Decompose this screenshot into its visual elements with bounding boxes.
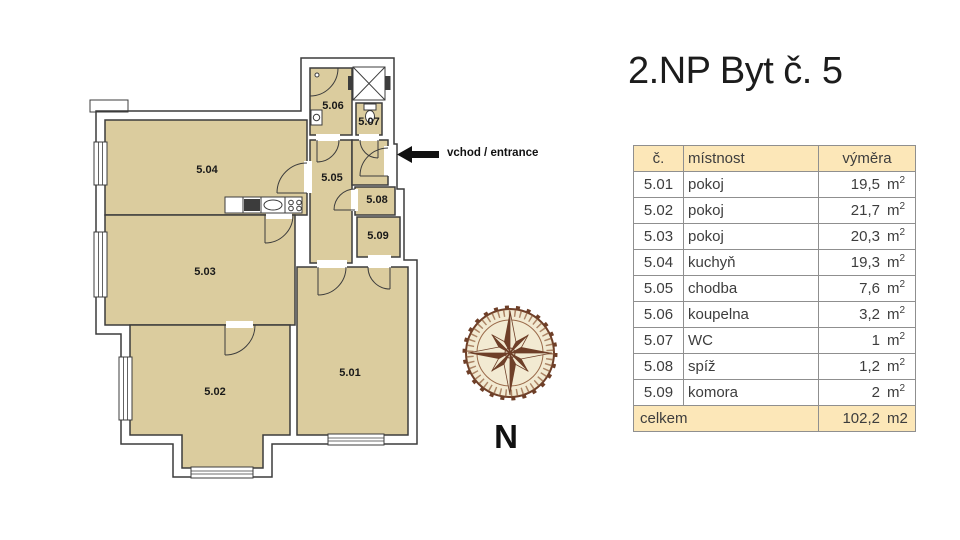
footer-area: 102,2m2 <box>819 406 916 432</box>
north-label: N <box>494 418 518 456</box>
table-row: 5.06koupelna3,2m2 <box>634 302 916 328</box>
area-table-body: 5.01pokoj19,5m25.02pokoj21,7m25.03pokoj2… <box>634 172 916 406</box>
cell-room: pokoj <box>684 224 819 250</box>
table-row: 5.04kuchyň19,3m2 <box>634 250 916 276</box>
cell-area: 2m2 <box>819 380 916 406</box>
cell-number: 5.05 <box>634 276 684 302</box>
cell-area: 1m2 <box>819 328 916 354</box>
compass-rose-icon <box>460 301 560 405</box>
cell-area: 3,2m2 <box>819 302 916 328</box>
cell-area: 21,7m2 <box>819 198 916 224</box>
cell-number: 5.07 <box>634 328 684 354</box>
cell-room: komora <box>684 380 819 406</box>
room-label-5-03: 5.03 <box>194 266 215 278</box>
room-label-5-08: 5.08 <box>366 194 387 206</box>
cell-area: 20,3m2 <box>819 224 916 250</box>
room-label-5-02: 5.02 <box>204 386 225 398</box>
table-row: 5.09komora2m2 <box>634 380 916 406</box>
page: 5.01 5.02 5.03 5.04 5.05 5.06 5.07 5.08 … <box>0 0 960 540</box>
table-footer-row: celkem 102,2m2 <box>634 406 916 432</box>
room-label-5-01: 5.01 <box>339 367 360 379</box>
cell-room: kuchyň <box>684 250 819 276</box>
floor-plan-drawing <box>60 50 460 490</box>
room-5-05-shape <box>310 140 352 263</box>
footer-label: celkem <box>634 406 819 432</box>
cell-area: 7,6m2 <box>819 276 916 302</box>
cell-number: 5.02 <box>634 198 684 224</box>
page-title: 2.NP Byt č. 5 <box>628 50 843 93</box>
entry-vestibule-shape <box>352 140 388 185</box>
table-row: 5.03pokoj20,3m2 <box>634 224 916 250</box>
cell-area: 19,3m2 <box>819 250 916 276</box>
cell-number: 5.04 <box>634 250 684 276</box>
kitchen-counter <box>225 197 302 213</box>
area-table: č. místnost výměra 5.01pokoj19,5m25.02po… <box>633 145 916 432</box>
room-label-5-06: 5.06 <box>322 100 343 112</box>
room-label-5-05: 5.05 <box>321 172 342 184</box>
cell-room: koupelna <box>684 302 819 328</box>
cell-room: WC <box>684 328 819 354</box>
room-label-5-09: 5.09 <box>367 230 388 242</box>
header-room: místnost <box>684 146 819 172</box>
cell-number: 5.08 <box>634 354 684 380</box>
cell-room: pokoj <box>684 198 819 224</box>
room-label-5-07: 5.07 <box>358 116 379 128</box>
entrance-label: vchod / entrance <box>447 147 538 159</box>
cell-area: 1,2m2 <box>819 354 916 380</box>
elevator-shaft <box>348 67 391 100</box>
cell-room: chodba <box>684 276 819 302</box>
cell-number: 5.01 <box>634 172 684 198</box>
room-label-5-04: 5.04 <box>196 164 217 176</box>
wall-bump <box>90 100 128 112</box>
header-area: výměra <box>819 146 916 172</box>
table-row: 5.01pokoj19,5m2 <box>634 172 916 198</box>
table-row: 5.02pokoj21,7m2 <box>634 198 916 224</box>
cell-number: 5.06 <box>634 302 684 328</box>
header-number: č. <box>634 146 684 172</box>
table-row: 5.05chodba7,6m2 <box>634 276 916 302</box>
cell-number: 5.09 <box>634 380 684 406</box>
rooms <box>105 68 408 468</box>
table-row: 5.07WC1m2 <box>634 328 916 354</box>
cell-number: 5.03 <box>634 224 684 250</box>
cell-area: 19,5m2 <box>819 172 916 198</box>
cell-room: spíž <box>684 354 819 380</box>
entrance-arrow-icon <box>397 146 439 163</box>
table-header-row: č. místnost výměra <box>634 146 916 172</box>
cell-room: pokoj <box>684 172 819 198</box>
room-5-01-shape <box>297 267 408 435</box>
table-row: 5.08spíž1,2m2 <box>634 354 916 380</box>
